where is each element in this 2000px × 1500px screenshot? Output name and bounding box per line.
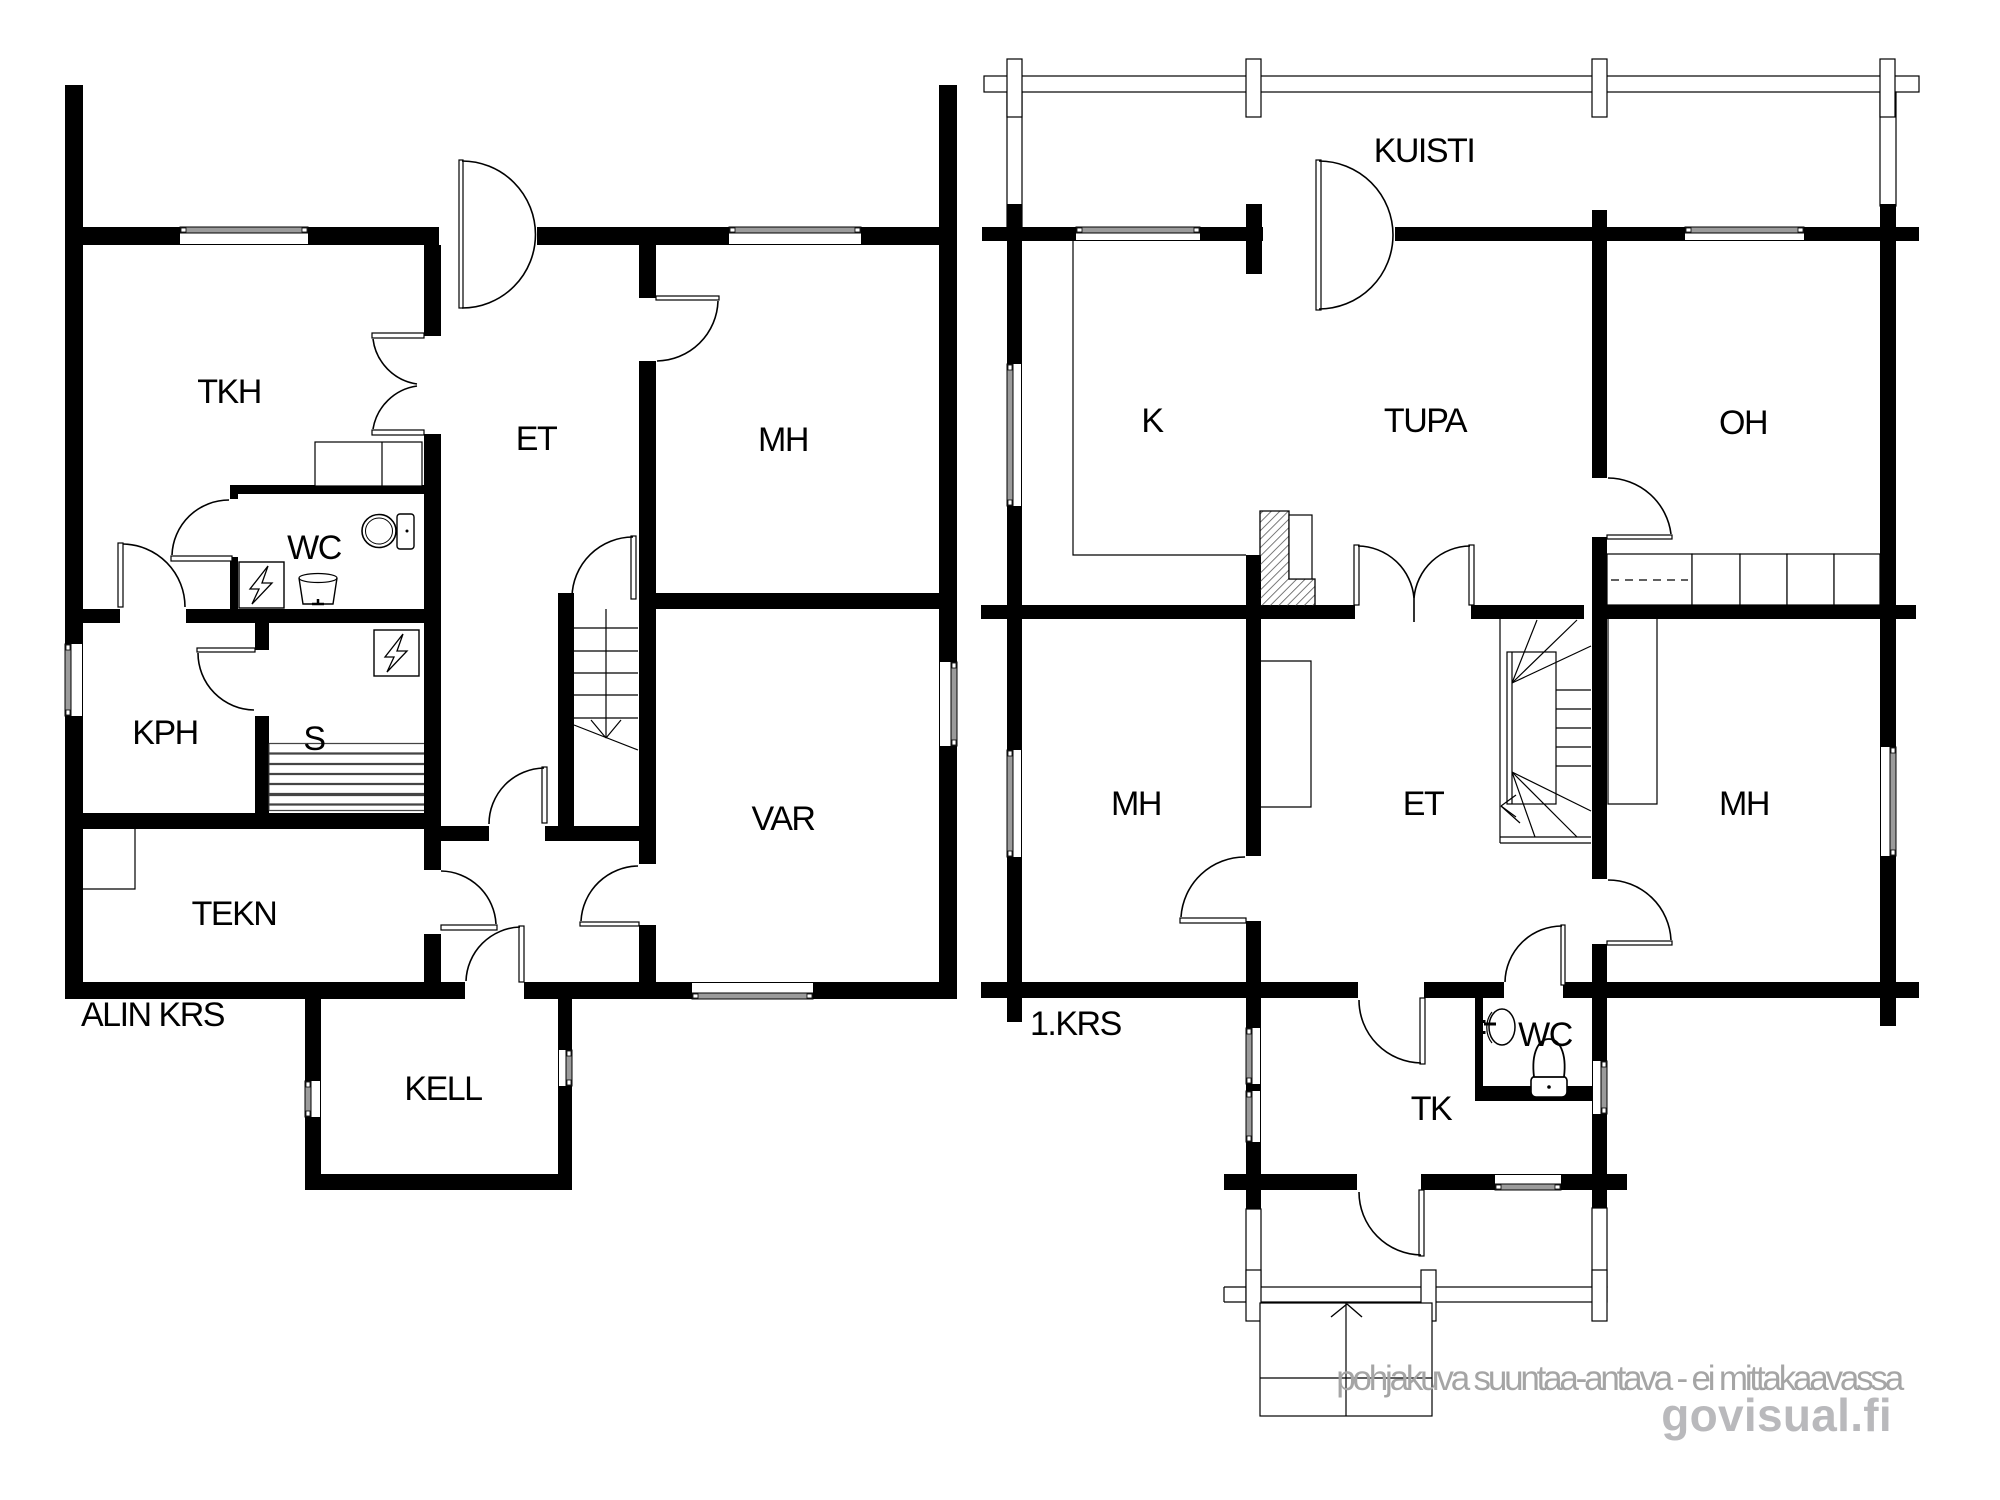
svg-text:ET: ET xyxy=(516,420,557,458)
svg-text:S: S xyxy=(303,720,325,758)
svg-text:OH: OH xyxy=(1719,404,1767,442)
svg-text:TKH: TKH xyxy=(197,373,261,411)
svg-text:WC: WC xyxy=(1518,1016,1573,1054)
svg-text:govisual.fi: govisual.fi xyxy=(1661,1389,1892,1441)
svg-text:MH: MH xyxy=(1111,785,1161,823)
svg-text:TK: TK xyxy=(1411,1090,1453,1128)
svg-text:KELL: KELL xyxy=(404,1070,482,1108)
svg-text:KPH: KPH xyxy=(132,714,197,752)
svg-text:MH: MH xyxy=(1719,785,1769,823)
svg-text:ALIN KRS: ALIN KRS xyxy=(81,996,225,1034)
svg-text:VAR: VAR xyxy=(752,800,815,838)
svg-text:WC: WC xyxy=(287,529,342,567)
svg-text:ET: ET xyxy=(1403,785,1444,823)
svg-text:KUISTI: KUISTI xyxy=(1374,132,1475,170)
svg-text:MH: MH xyxy=(758,421,808,459)
svg-text:TUPA: TUPA xyxy=(1384,402,1468,440)
svg-text:TEKN: TEKN xyxy=(192,895,277,933)
svg-text:K: K xyxy=(1141,402,1164,440)
svg-text:1.KRS: 1.KRS xyxy=(1030,1005,1122,1043)
